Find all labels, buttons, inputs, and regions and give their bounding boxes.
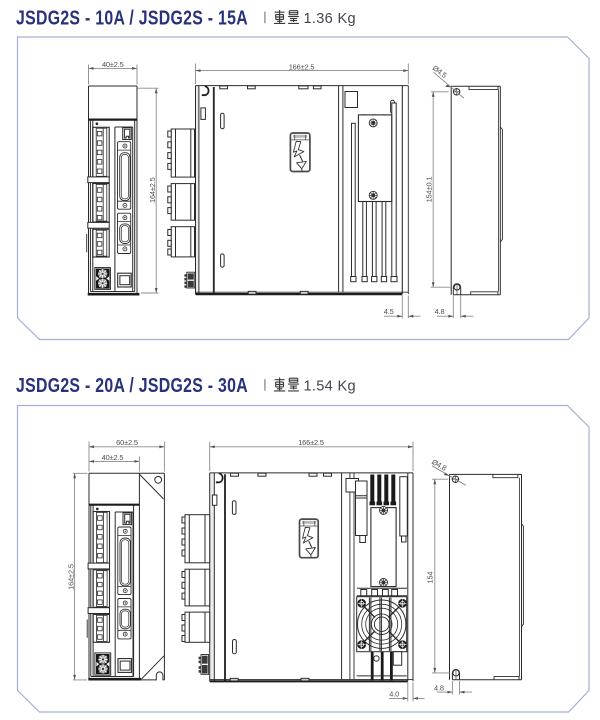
svg-text:4.8: 4.8 [434, 683, 444, 692]
svg-text:40±2.5: 40±2.5 [102, 60, 124, 69]
svg-text:1.36 Kg: 1.36 Kg [304, 11, 356, 27]
svg-text:4.8: 4.8 [435, 307, 445, 316]
svg-text:4.0: 4.0 [389, 690, 399, 699]
svg-text:154±0.1: 154±0.1 [425, 177, 434, 203]
svg-text:40±2.5: 40±2.5 [102, 453, 124, 462]
svg-text:JSDG2S - 10A / JSDG2S - 15A: JSDG2S - 10A / JSDG2S - 15A [16, 6, 248, 29]
svg-text:166±2.5: 166±2.5 [298, 438, 324, 447]
svg-text:1.54 Kg: 1.54 Kg [304, 379, 356, 395]
svg-text:JSDG2S - 20A / JSDG2S - 30A: JSDG2S - 20A / JSDG2S - 30A [16, 374, 248, 397]
svg-text:4.5: 4.5 [384, 307, 394, 316]
svg-text:164±2.5: 164±2.5 [148, 177, 157, 203]
svg-text:164±2.5: 164±2.5 [66, 564, 75, 590]
svg-text:60±2.5: 60±2.5 [116, 438, 138, 447]
svg-text:154: 154 [426, 572, 435, 584]
svg-text:166±2.5: 166±2.5 [289, 62, 315, 71]
